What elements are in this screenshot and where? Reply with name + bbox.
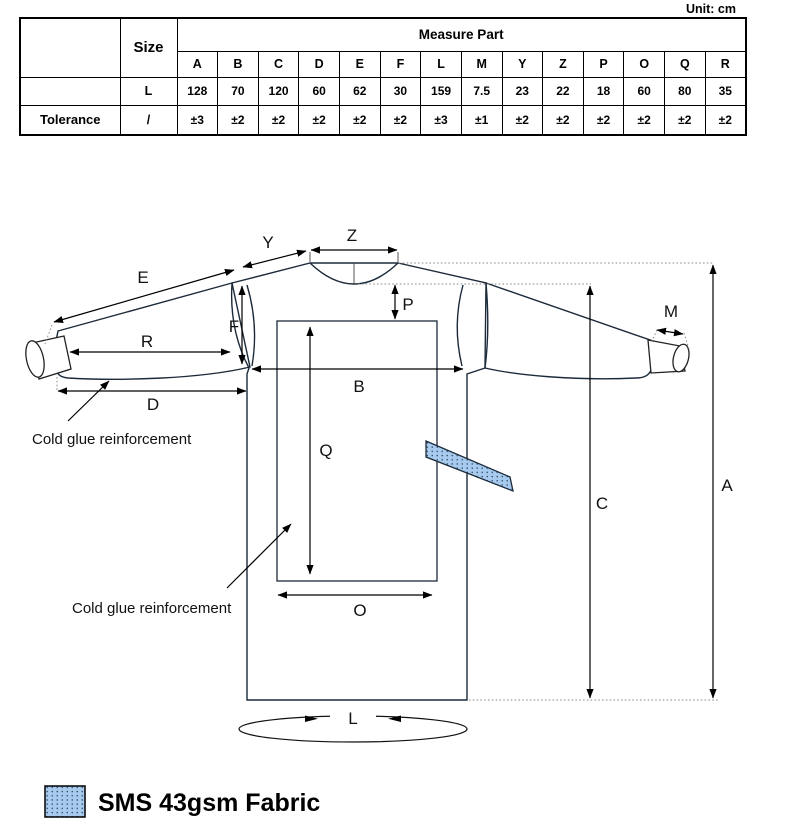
label-P: P: [402, 295, 413, 314]
label-C: C: [596, 494, 608, 513]
label-O: O: [353, 601, 366, 620]
fabric-swatch: [45, 786, 85, 817]
fabric-legend: SMS 43gsm Fabric: [45, 786, 320, 817]
spec-sheet: Unit: cm Size Measure Part A B C D E F L…: [0, 0, 798, 824]
right-cuff: [648, 340, 692, 373]
leader-cold-glue-top: [68, 381, 109, 421]
label-L: L: [348, 709, 357, 728]
label-B: B: [353, 377, 364, 396]
label-R: R: [141, 332, 153, 351]
label-D: D: [147, 395, 159, 414]
fabric-legend-label: SMS 43gsm Fabric: [98, 789, 320, 817]
cold-glue-note-top: Cold glue reinforcement: [32, 431, 192, 448]
label-F: F: [229, 317, 239, 336]
cold-glue-note-mid: Cold glue reinforcement: [72, 600, 232, 617]
label-A: A: [721, 476, 733, 495]
label-E: E: [137, 268, 148, 287]
right-armhole-seam: [457, 285, 463, 366]
label-Y: Y: [262, 233, 273, 252]
gown-diagram: Z Y E R F D B P Q O M C A L Cold glue re…: [0, 0, 798, 824]
reinforcement-panel: [277, 321, 437, 581]
label-M: M: [664, 302, 678, 321]
dim-M: [657, 330, 683, 334]
dim-Y: [243, 251, 306, 267]
label-Q: Q: [319, 441, 332, 460]
label-Z: Z: [347, 226, 357, 245]
right-sleeve: [485, 283, 656, 379]
left-cuff: [23, 336, 71, 379]
left-armhole-seam: [247, 285, 255, 366]
gown-body: [232, 263, 488, 700]
leader-cold-glue-mid: [227, 524, 291, 588]
waist-tie: [426, 441, 513, 491]
